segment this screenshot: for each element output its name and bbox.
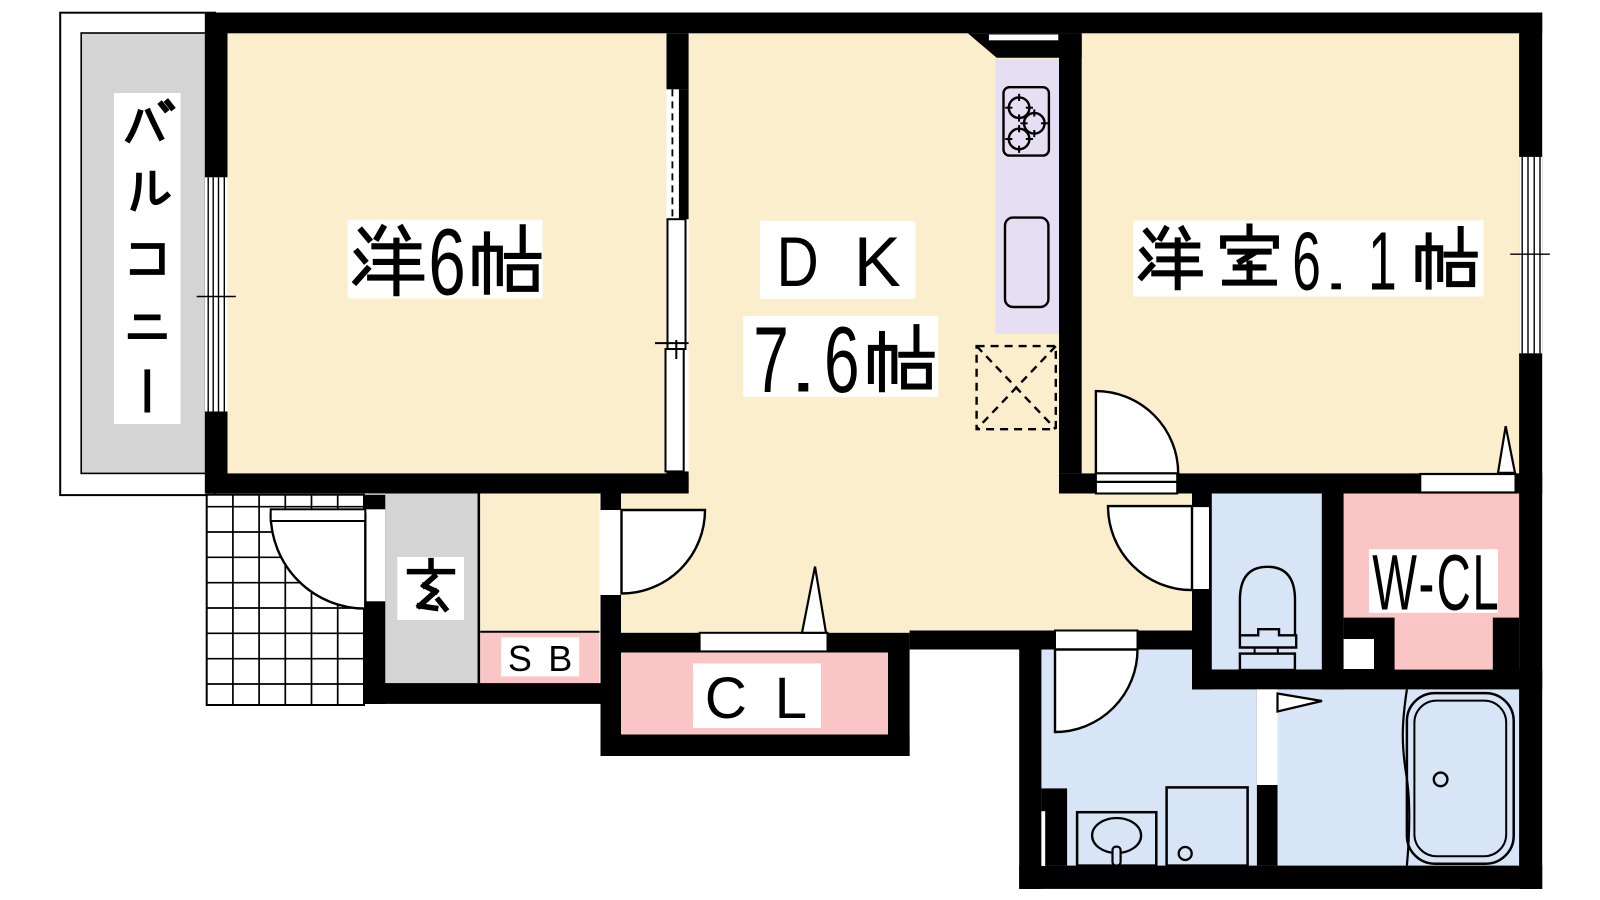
- svg-text:W: W: [1372, 538, 1417, 627]
- svg-text:L: L: [1472, 538, 1498, 627]
- svg-text:7: 7: [753, 308, 789, 413]
- svg-text:1: 1: [1368, 214, 1397, 308]
- svg-text:B: B: [548, 638, 572, 679]
- svg-text:C: C: [705, 666, 747, 731]
- svg-text:6: 6: [824, 308, 860, 413]
- svg-text:-: -: [1419, 538, 1435, 627]
- svg-text:K: K: [854, 222, 901, 301]
- svg-text:S: S: [508, 638, 532, 679]
- svg-text:C: C: [1437, 538, 1471, 627]
- svg-text:6: 6: [428, 210, 465, 315]
- svg-text:L: L: [775, 666, 807, 731]
- svg-text:6: 6: [1292, 214, 1321, 308]
- svg-text:D: D: [776, 222, 818, 301]
